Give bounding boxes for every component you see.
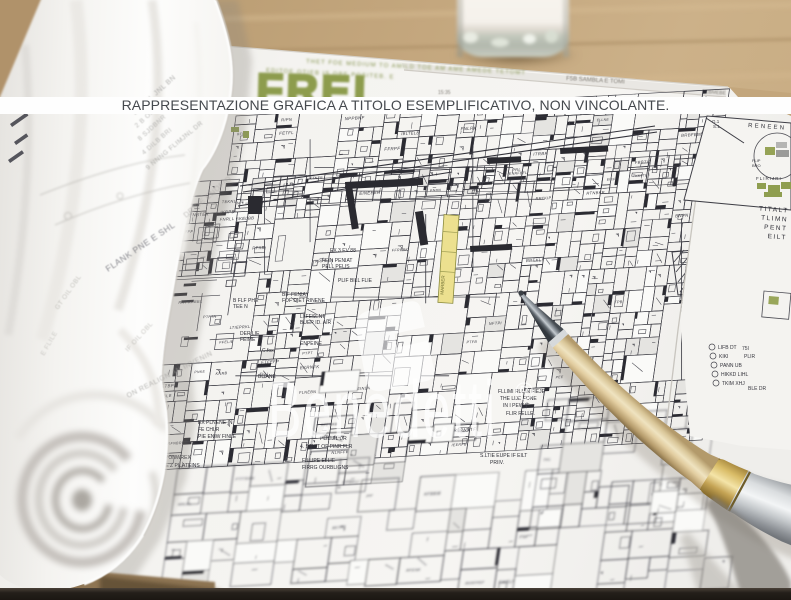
svg-text:ELLNE: ELLNE — [596, 118, 609, 123]
svg-text:TKIM XHJ: TKIM XHJ — [722, 381, 745, 387]
svg-text:RFENK: RFENK — [406, 567, 421, 573]
svg-text:PANN UB: PANN UB — [720, 363, 743, 369]
svg-text:PTPT: PTPT — [302, 351, 314, 356]
svg-text:PIE ENIW FINLE: PIE ENIW FINLE — [198, 434, 237, 440]
svg-text:RFIIB: RFIIB — [252, 245, 265, 251]
svg-text:BKELBB: BKELBB — [236, 215, 255, 221]
svg-text:ITRBR: ITRBR — [533, 151, 548, 157]
svg-text:BLE DR: BLE DR — [748, 386, 766, 392]
svg-text:S.1: S.1 — [713, 124, 720, 129]
svg-text:BRO: BRO — [752, 163, 761, 168]
svg-text:EX PLNENE IN: EX PLNENE IN — [198, 420, 233, 426]
svg-text:C.fox: C.fox — [262, 348, 274, 354]
svg-text:FFELIB: FFELIB — [219, 340, 234, 345]
svg-text:IBLTELB: IBLTELB — [401, 130, 420, 136]
svg-text:PTFTN: PTFTN — [203, 315, 217, 320]
svg-text:FOF DIET RINENE: FOF DIET RINENE — [282, 298, 326, 304]
svg-text:HIKKD LIHL: HIKKD LIHL — [721, 372, 748, 378]
svg-text:PNBN: PNBN — [430, 188, 442, 193]
svg-text:ENPEINE: ENPEINE — [300, 341, 323, 347]
svg-text:TKL: TKL — [543, 458, 551, 462]
svg-text:FIRRG OURBLIGNS: FIRRG OURBLIGNS — [302, 465, 349, 471]
svg-text:IPP: IPP — [366, 494, 373, 498]
svg-text:Benedetti: Benedetti — [268, 365, 497, 455]
svg-text:TEE N: TEE N — [233, 304, 248, 310]
svg-text:FBBTIT: FBBTIT — [634, 159, 651, 165]
svg-text:LIFB DT: LIFB DT — [718, 345, 737, 351]
svg-text:PELL PELIS: PELL PELIS — [322, 264, 350, 270]
svg-text:PNKE: PNKE — [194, 370, 206, 375]
svg-text:FLIRIJRI: FLIRIJRI — [756, 176, 782, 181]
svg-text:®: ® — [515, 378, 534, 406]
svg-text:PLIR: PLIR — [744, 354, 756, 360]
svg-text:BNPN: BNPN — [675, 213, 689, 219]
svg-text:FILLIPE ELLIE: FILLIPE ELLIE — [302, 458, 336, 464]
svg-text:KNRB: KNRB — [215, 370, 228, 376]
svg-text:PRIIV.: PRIIV. — [490, 460, 504, 466]
svg-text:FNLRK: FNLRK — [460, 126, 477, 132]
svg-text:FFRPF: FFRPF — [384, 146, 401, 152]
svg-text:PTFB: PTFB — [466, 340, 477, 345]
svg-text:EX 3 EV 88: EX 3 EV 88 — [330, 248, 356, 254]
svg-text:NFTPI: NFTPI — [489, 320, 503, 326]
svg-text:RTNBKP: RTNBKP — [586, 190, 605, 196]
svg-text:FETFL: FETFL — [279, 130, 295, 136]
svg-text:RRTKIP: RRTKIP — [535, 195, 552, 201]
svg-text:KIKI: KIKI — [719, 354, 728, 360]
svg-text:15:35: 15:35 — [438, 90, 451, 96]
svg-text:TPB: TPB — [614, 299, 623, 304]
svg-text:KTNFB: KTNFB — [309, 176, 323, 181]
svg-text:FEIME: FEIME — [240, 337, 256, 343]
svg-text:BUER ID. AIR: BUER ID. AIR — [300, 320, 332, 326]
svg-text:NNLFL: NNLFL — [178, 501, 193, 507]
svg-text:FNF: FNF — [519, 534, 529, 539]
svg-text:EILT: EILT — [767, 233, 787, 241]
svg-text:FLIR FELLE.: FLIR FELLE. — [506, 411, 535, 417]
svg-text:EPBKLI: EPBKLI — [342, 479, 360, 485]
svg-text:75I: 75I — [742, 346, 749, 352]
svg-text:FE CHLR: FE CHLR — [198, 427, 220, 433]
svg-text:PLIF BILL FLIE: PLIF BILL FLIE — [338, 278, 373, 284]
svg-text:KFBBIB: KFBBIB — [424, 491, 441, 497]
svg-text:BETP: BETP — [332, 525, 344, 530]
svg-text:RIPN: RIPN — [281, 117, 293, 123]
